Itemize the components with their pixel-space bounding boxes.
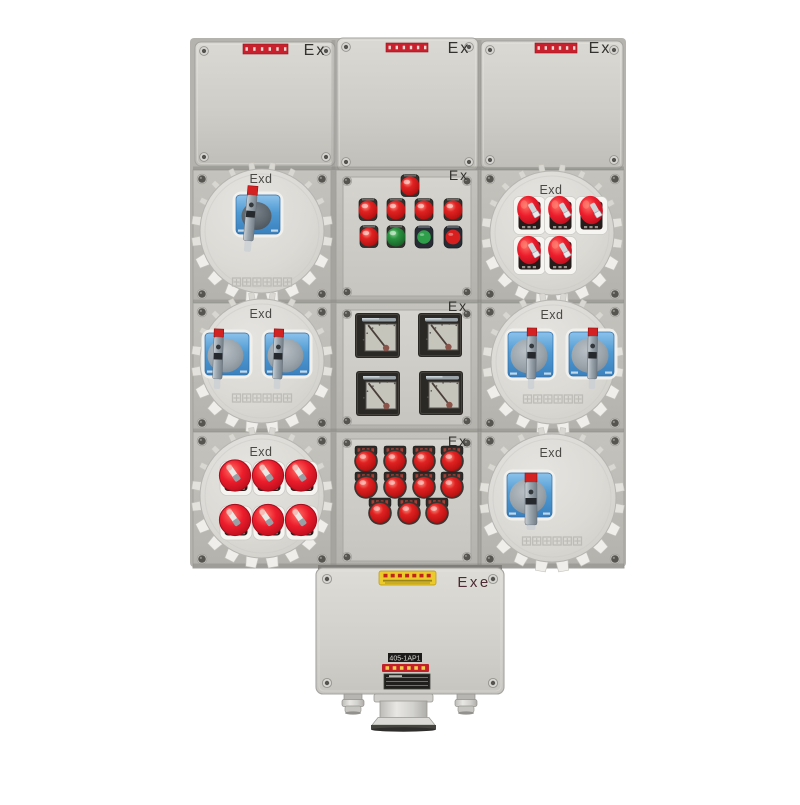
svg-text:Exd: Exd xyxy=(249,172,272,186)
svg-text:Exd: Exd xyxy=(540,308,563,322)
svg-text:Ex: Ex xyxy=(448,40,471,57)
svg-text:Exd: Exd xyxy=(539,183,562,197)
svg-text:Exd: Exd xyxy=(249,445,272,459)
svg-text:Ex: Ex xyxy=(589,40,612,57)
svg-text:Exd: Exd xyxy=(249,307,272,321)
svg-text:Ex: Ex xyxy=(448,298,468,314)
svg-text:Exe: Exe xyxy=(457,574,490,591)
svg-text:Ex: Ex xyxy=(304,42,327,59)
svg-text:405-1AP1: 405-1AP1 xyxy=(389,655,420,662)
svg-text:Ex: Ex xyxy=(449,167,469,183)
svg-text:Exd: Exd xyxy=(539,446,562,460)
